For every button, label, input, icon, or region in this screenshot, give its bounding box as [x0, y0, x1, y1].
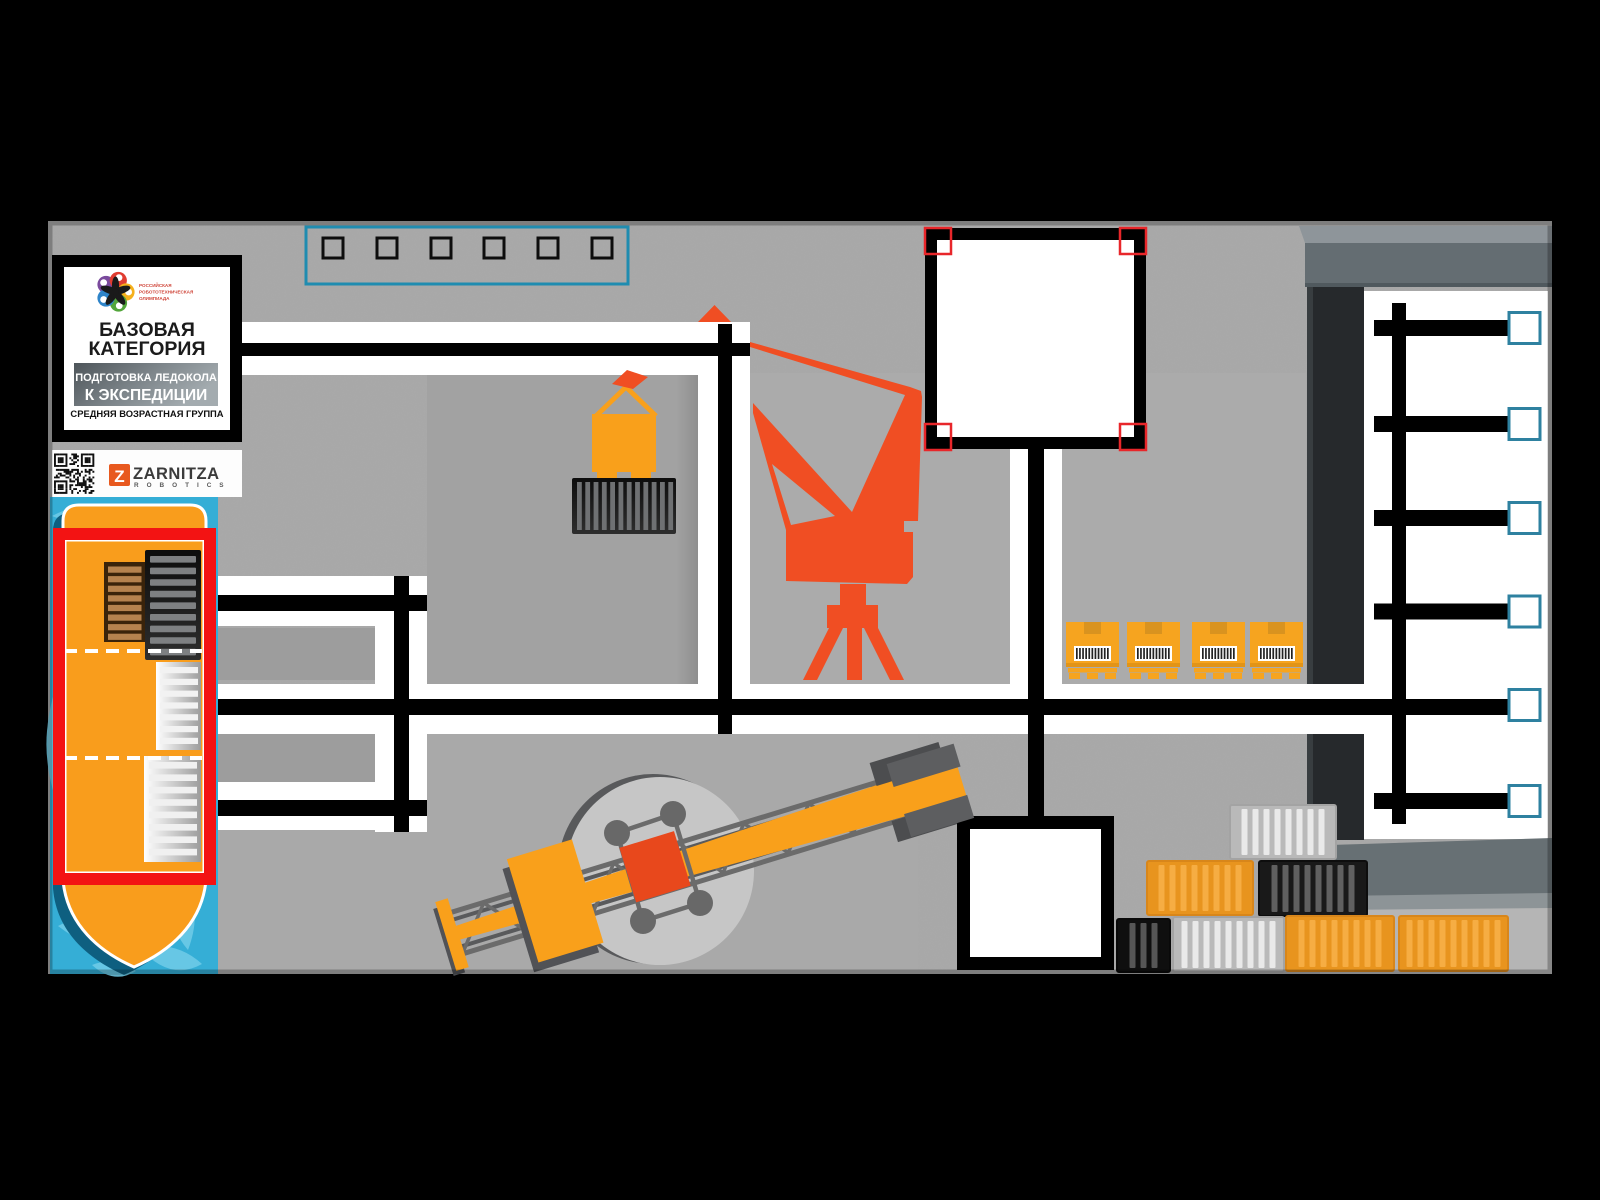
svg-text:СРЕДНЯЯ ВОЗРАСТНАЯ ГРУППА: СРЕДНЯЯ ВОЗРАСТНАЯ ГРУППА: [70, 408, 223, 419]
svg-text:РОССИЙСКАЯ: РОССИЙСКАЯ: [139, 281, 172, 288]
svg-text:К ЭКСПЕДИЦИИ: К ЭКСПЕДИЦИИ: [85, 387, 208, 404]
svg-text:РОБОТОТЕХНИЧЕСКАЯ: РОБОТОТЕХНИЧЕСКАЯ: [139, 290, 193, 295]
svg-text:КАТЕГОРИЯ: КАТЕГОРИЯ: [89, 338, 206, 360]
svg-text:R O B O T I C S: R O B O T I C S: [134, 482, 227, 489]
svg-text:ПОДГОТОВКА ЛЕДОКОЛА: ПОДГОТОВКА ЛЕДОКОЛА: [75, 372, 217, 384]
svg-text:Z: Z: [114, 467, 124, 486]
svg-text:ОЛИМПИАДА: ОЛИМПИАДА: [139, 296, 170, 301]
svg-text:ZARNITZA: ZARNITZA: [133, 465, 219, 483]
